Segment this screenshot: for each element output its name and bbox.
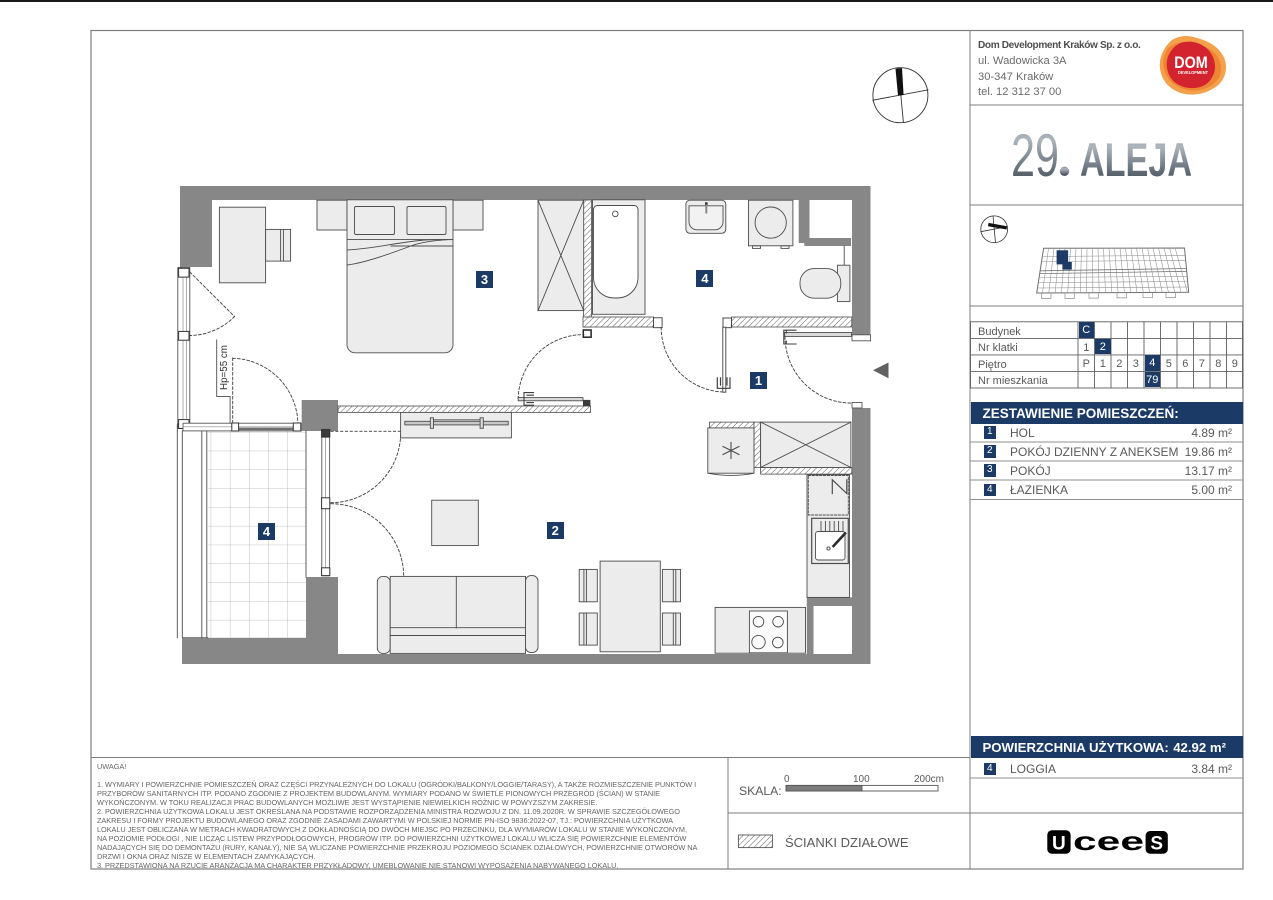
svg-text:29: 29 (1011, 122, 1059, 189)
svg-text:U: U (1052, 833, 1066, 854)
svg-text:cee: cee (1073, 826, 1144, 856)
svg-text:ALEJA: ALEJA (1080, 133, 1192, 186)
svg-text:S: S (1150, 834, 1163, 855)
